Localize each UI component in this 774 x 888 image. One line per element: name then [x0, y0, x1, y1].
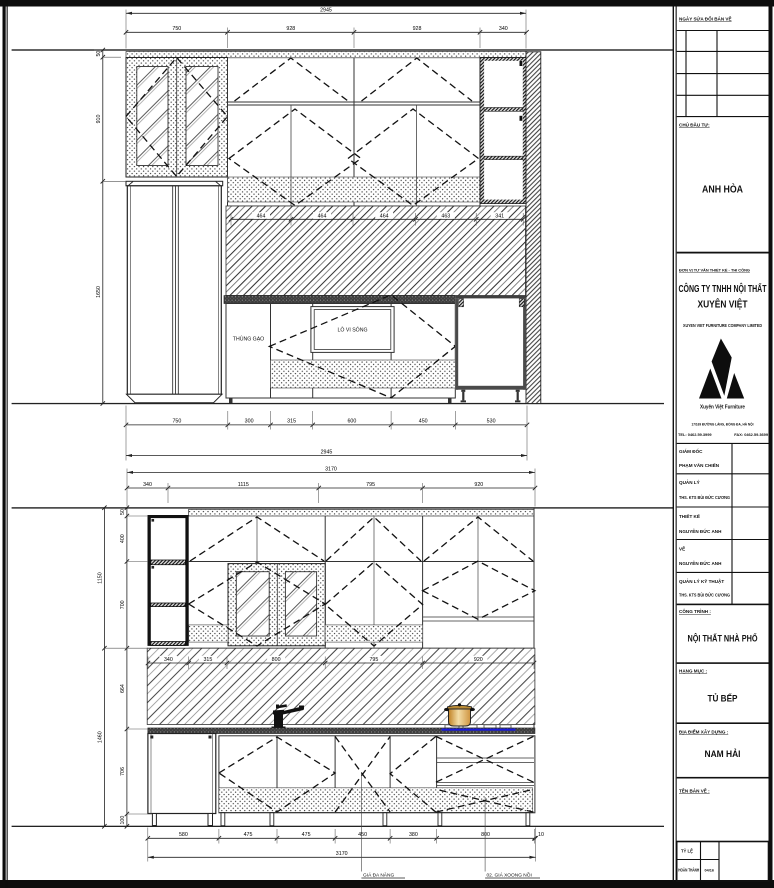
svg-text:450: 450 [358, 832, 367, 838]
svg-text:464: 464 [380, 213, 389, 219]
svg-text:NGUYỄN ĐỨC ANH: NGUYỄN ĐỨC ANH [679, 528, 722, 534]
svg-text:341: 341 [495, 213, 504, 219]
svg-text:THS. KTS BÙI ĐỨC CƯƠNG: THS. KTS BÙI ĐỨC CƯƠNG [679, 494, 730, 500]
svg-text:928: 928 [413, 26, 422, 32]
svg-text:17/169 ĐƯỜNG LÁNG, ĐỐNG ĐA, HÀ: 17/169 ĐƯỜNG LÁNG, ĐỐNG ĐA, HÀ NỘI [692, 422, 754, 427]
svg-text:3170: 3170 [336, 851, 348, 857]
svg-text:315: 315 [203, 657, 212, 663]
svg-text:300: 300 [245, 419, 254, 425]
svg-text:NGÀY SỬA ĐỔI BẢN VẼ: NGÀY SỬA ĐỔI BẢN VẼ [679, 16, 732, 22]
svg-text:464: 464 [318, 213, 327, 219]
svg-text:TÊN BẢN VẼ :: TÊN BẢN VẼ : [679, 787, 710, 794]
svg-text:THS. KTS BÙI ĐỨC CƯƠNG: THS. KTS BÙI ĐỨC CƯƠNG [679, 592, 730, 598]
svg-text:TỶ LỆ: TỶ LỆ [681, 849, 693, 854]
svg-text:100: 100 [120, 816, 126, 825]
svg-text:664: 664 [120, 684, 126, 693]
svg-text:580: 580 [179, 832, 188, 838]
svg-text:450: 450 [419, 419, 428, 425]
svg-text:2945: 2945 [321, 449, 333, 455]
svg-text:1460: 1460 [98, 731, 104, 743]
svg-text:NAM HẢI: NAM HẢI [705, 748, 741, 759]
svg-text:928: 928 [286, 26, 295, 32]
svg-text:TEL: 0462.59.3999: TEL: 0462.59.3999 [678, 432, 712, 437]
svg-text:CÔNG TRÌNH :: CÔNG TRÌNH : [679, 607, 711, 614]
svg-text:800: 800 [481, 832, 490, 838]
svg-text:750: 750 [172, 419, 181, 425]
svg-text:PHẠM VĂN CHIẾN: PHẠM VĂN CHIẾN [679, 462, 720, 468]
svg-text:380: 380 [409, 832, 418, 838]
svg-text:FAX: 0462.59.3699: FAX: 0462.59.3699 [734, 432, 769, 437]
svg-text:340: 340 [499, 26, 508, 32]
svg-text:1150: 1150 [98, 572, 104, 583]
svg-text:CÔNG TY TNHH NỘI THẤT: CÔNG TY TNHH NỘI THẤT [679, 282, 768, 295]
svg-text:706: 706 [120, 767, 126, 776]
svg-text:400: 400 [120, 534, 126, 543]
svg-text:THÙNG GẠO: THÙNG GẠO [233, 336, 264, 343]
svg-text:GIÁ ĐA NĂNG: GIÁ ĐA NĂNG [363, 872, 394, 879]
svg-text:50: 50 [96, 51, 102, 57]
svg-text:600: 600 [347, 419, 356, 425]
svg-text:464: 464 [257, 213, 266, 219]
svg-text:50: 50 [120, 509, 126, 515]
svg-text:475: 475 [244, 832, 253, 838]
svg-text:TỦ BẾP: TỦ BẾP [708, 693, 738, 704]
svg-text:THIẾT KẾ: THIẾT KẾ [679, 513, 700, 519]
svg-text:QUẢN LÝ KỸ THUẬT: QUẢN LÝ KỸ THUẬT [679, 578, 724, 584]
svg-text:315: 315 [287, 419, 296, 425]
svg-text:ĐƠN VỊ TƯ VẤN THIẾT KẾ - THI C: ĐƠN VỊ TƯ VẤN THIẾT KẾ - THI CÔNG [679, 268, 750, 273]
svg-text:LÒ VI SÓNG: LÒ VI SÓNG [338, 327, 368, 334]
svg-text:2945: 2945 [320, 7, 332, 13]
svg-text:HẠNG MỤC :: HẠNG MỤC : [679, 669, 708, 674]
svg-text:1650: 1650 [96, 286, 102, 298]
svg-text:NỘI THẤT NHÀ PHỐ: NỘI THẤT NHÀ PHỐ [688, 633, 758, 644]
svg-text:QUẢN LÝ: QUẢN LÝ [679, 479, 700, 485]
svg-text:475: 475 [302, 832, 311, 838]
svg-text:ĐỊA ĐIỂM XÂY DỰNG :: ĐỊA ĐIỂM XÂY DỰNG : [679, 729, 729, 735]
svg-text:ANH HÒA: ANH HÒA [702, 183, 743, 196]
svg-text:GIÁM ĐỐC: GIÁM ĐỐC [679, 448, 703, 454]
svg-text:04/16: 04/16 [705, 869, 715, 873]
svg-text:Xuyên Việt Furniture: Xuyên Việt Furniture [700, 404, 745, 410]
svg-text:530: 530 [487, 419, 496, 425]
svg-text:920: 920 [474, 482, 483, 488]
svg-text:800: 800 [272, 657, 281, 663]
svg-text:340: 340 [164, 657, 173, 663]
svg-text:340: 340 [143, 482, 152, 488]
svg-text:700: 700 [120, 600, 126, 609]
svg-text:XUYÊN VIỆT: XUYÊN VIỆT [698, 298, 749, 311]
svg-text:1115: 1115 [238, 482, 249, 488]
svg-text:920: 920 [474, 657, 483, 663]
svg-text:CHỦ ĐẦU TƯ:: CHỦ ĐẦU TƯ: [679, 122, 710, 128]
svg-text:750: 750 [172, 26, 181, 32]
svg-text:463: 463 [441, 213, 450, 219]
svg-text:02. GIÁ XOONG NỒI: 02. GIÁ XOONG NỒI [487, 872, 532, 879]
svg-text:795: 795 [369, 657, 378, 663]
svg-text:NGUYỄN ĐỨC ANH: NGUYỄN ĐỨC ANH [679, 560, 722, 566]
svg-text:10: 10 [538, 832, 544, 838]
svg-text:HOÀN THÀNH: HOÀN THÀNH [678, 868, 699, 873]
svg-text:XUYEN VIET FURNITURE COMPANY L: XUYEN VIET FURNITURE COMPANY LIMITED [683, 323, 762, 329]
svg-text:VẼ: VẼ [679, 546, 685, 552]
svg-text:910: 910 [96, 115, 102, 124]
svg-text:795: 795 [366, 482, 375, 488]
svg-text:3170: 3170 [325, 466, 337, 472]
